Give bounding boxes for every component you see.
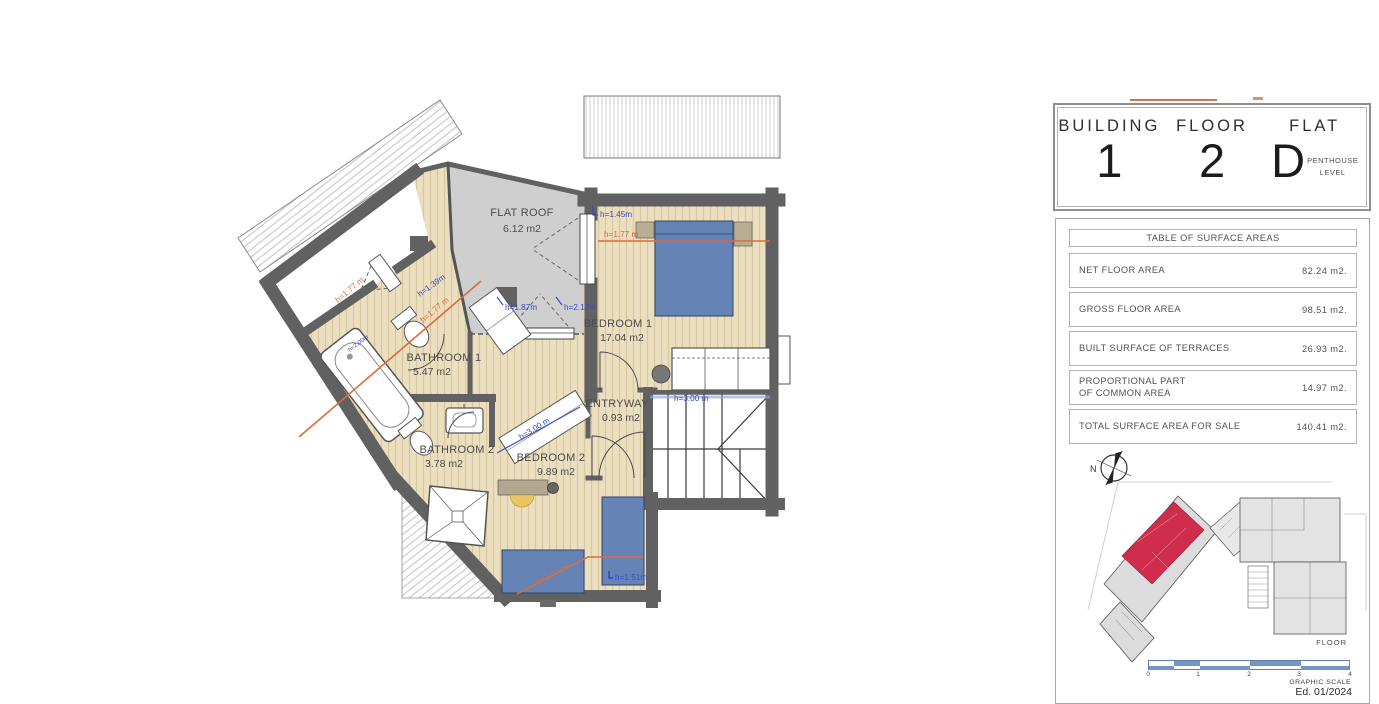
room-label-bathroom1: BATHROOM 1 [407, 352, 482, 364]
top-roof-hatch [584, 96, 780, 158]
room-label-bedroom1: BEDROOM 1 [584, 318, 653, 330]
room-area-bathroom2: 3.78 m2 [425, 458, 463, 470]
table-row: GROSS FLOOR AREA 98.51 m2. [1069, 292, 1357, 327]
row-value: 98.51 m2. [1302, 305, 1347, 315]
room-area-entryway: 0.93 m2 [602, 412, 640, 424]
staircase [650, 394, 770, 504]
row-label: BUILT SURFACE OF TERRACES [1079, 343, 1230, 354]
row-label: TOTAL SURFACE AREA FOR SALE [1079, 421, 1241, 432]
table-row: TOTAL SURFACE AREA FOR SALE 140.41 m2. [1069, 409, 1357, 444]
room-label-flat-roof: FLAT ROOF [490, 207, 553, 219]
row-label: NET FLOOR AREA [1079, 265, 1165, 276]
flat-value: D [1271, 136, 1305, 185]
deco-orange-line [1130, 99, 1217, 101]
graphic-scale-bar [1148, 660, 1350, 670]
scale-tick: 2 [1239, 671, 1259, 678]
scale-tick: 3 [1289, 671, 1309, 678]
height-note: h=1.51m [615, 573, 647, 582]
height-note: h=1.87m [505, 303, 537, 312]
shower-bathroom2 [426, 486, 488, 546]
deco-orange-dash [1253, 97, 1263, 100]
height-note: h=2.17m [564, 303, 596, 312]
room-area-flat-roof: 6.12 m2 [503, 223, 541, 235]
row-label: PROPORTIONAL PART OF COMMON AREA [1079, 376, 1186, 398]
table-row: BUILT SURFACE OF TERRACES 26.93 m2. [1069, 331, 1357, 366]
scale-tick: 0 [1138, 671, 1158, 678]
stool-bedroom1 [652, 365, 670, 383]
table-row: NET FLOOR AREA 82.24 m2. [1069, 253, 1357, 288]
table-row: PROPORTIONAL PART OF COMMON AREA 14.97 m… [1069, 370, 1357, 405]
floorplan-sheet: FLAT ROOF 6.12 m2 BEDROOM 1 17.04 m2 BAT… [0, 0, 1379, 704]
header-floor: FLOOR 2 [1161, 108, 1264, 206]
row-value: 26.93 m2. [1302, 344, 1347, 354]
row-label: GROSS FLOOR AREA [1079, 304, 1181, 315]
height-note: h=1.77 m [604, 230, 639, 239]
right-wall-window [778, 336, 790, 384]
flat-note-line1: PENTHOUSE [1307, 155, 1358, 167]
flat-note-line2: LEVEL [1320, 167, 1346, 179]
row-value: 82.24 m2. [1302, 266, 1347, 276]
room-area-bedroom1: 17.04 m2 [600, 332, 644, 344]
flat-note: PENTHOUSE LEVEL [1307, 155, 1358, 179]
scale-tick: 1 [1188, 671, 1208, 678]
row-label-line2: OF COMMON AREA [1079, 388, 1186, 399]
sink-bathroom2 [446, 404, 483, 433]
surface-table-title: TABLE OF SURFACE AREAS [1069, 229, 1357, 247]
scale-tick: 4 [1340, 671, 1360, 678]
unit-header-box: BUILDING 1 FLOOR 2 FLAT D PENTHOUSE LEVE… [1053, 103, 1371, 211]
scale-caption: GRAPHIC SCALE [1289, 679, 1351, 686]
edition-label: Ed. 01/2024 [1295, 686, 1352, 698]
header-flat: FLAT D PENTHOUSE LEVEL [1263, 108, 1366, 206]
info-panel: TABLE OF SURFACE AREAS NET FLOOR AREA 82… [1055, 218, 1370, 704]
wardrobe-bedroom1 [672, 348, 770, 390]
room-label-bathroom2: BATHROOM 2 [420, 444, 495, 456]
row-value: 14.97 m2. [1302, 383, 1347, 393]
header-building: BUILDING 1 [1058, 108, 1161, 206]
row-value: 140.41 m2. [1296, 422, 1347, 432]
room-area-bedroom2: 9.89 m2 [537, 466, 575, 478]
room-label-bedroom2: BEDROOM 2 [517, 452, 586, 464]
height-note: h=3.00 m [674, 394, 709, 403]
height-note: h=1.45m [600, 210, 632, 219]
floor-caption: FLOOR [1316, 638, 1347, 647]
stool-bedroom2 [548, 483, 559, 494]
building-value: 1 [1096, 136, 1122, 185]
room-label-entryway: ENTRYWAY [585, 398, 649, 410]
floor-value: 2 [1199, 136, 1225, 185]
row-label-line1: PROPORTIONAL PART [1079, 376, 1186, 387]
room-area-bathroom1: 5.47 m2 [413, 366, 451, 378]
